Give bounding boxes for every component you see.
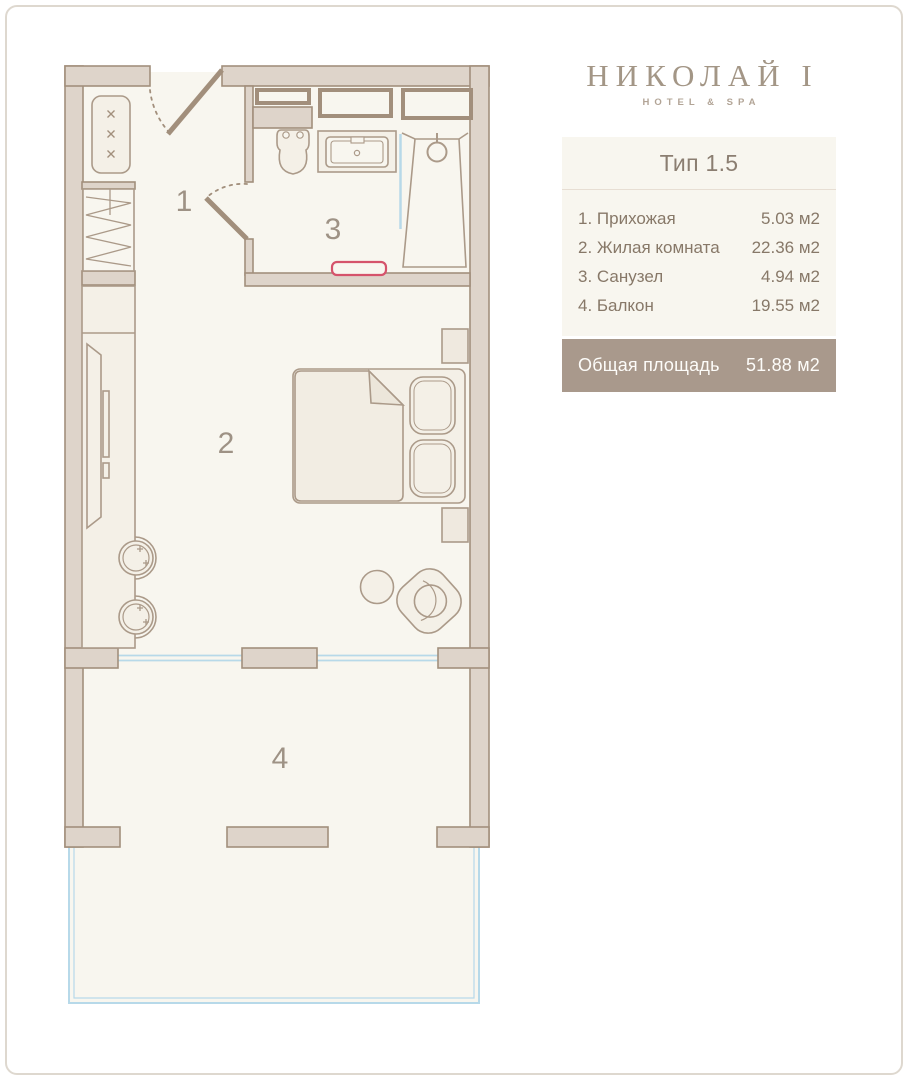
shower-head xyxy=(428,143,447,162)
brand-name: НИКОЛАЙ I xyxy=(562,60,836,91)
room-label: 1. Прихожая xyxy=(578,204,676,233)
room-label: 4. Балкон xyxy=(578,291,654,320)
panel-header: Тип 1.5 xyxy=(562,137,836,190)
wall-top-right xyxy=(222,66,489,86)
wall-balcony-post-left xyxy=(65,648,118,668)
shoe-cabinet xyxy=(92,96,130,173)
room-list: 1. Прихожая 5.03 м2 2. Жилая комната 22.… xyxy=(562,190,836,336)
wall-balcony-stub-right xyxy=(437,827,489,847)
wall-closet-bottom xyxy=(82,271,135,285)
total-label: Общая площадь xyxy=(578,355,720,376)
room-row: 3. Санузел 4.94 м2 xyxy=(578,262,820,291)
tv-screen xyxy=(103,391,109,457)
nightstand-bottom xyxy=(442,508,468,542)
room-label: 3. Санузел xyxy=(578,262,663,291)
legend-panel: Тип 1.5 1. Прихожая 5.03 м2 2. Жилая ком… xyxy=(562,137,836,336)
room-label-living: 2 xyxy=(218,427,235,460)
total-area-bar: Общая площадь 51.88 м2 xyxy=(562,339,836,392)
wall-left xyxy=(65,66,83,847)
vanity-sink xyxy=(318,131,396,172)
ledge-above-toilet xyxy=(253,107,312,128)
room-row: 1. Прихожая 5.03 м2 xyxy=(578,204,820,233)
wall-bathroom-corner xyxy=(245,239,253,275)
terrace-floor xyxy=(69,846,479,1004)
balcony-sliding-door xyxy=(242,648,317,668)
coat-closet xyxy=(83,189,134,271)
room-label-balcony: 4 xyxy=(272,742,289,775)
room-area: 4.94 м2 xyxy=(761,262,820,291)
wall-bathroom-left xyxy=(245,86,253,182)
brand-tagline: HOTEL & SPA xyxy=(562,97,836,108)
room-area: 19.55 м2 xyxy=(752,291,820,320)
brand-block: НИКОЛАЙ I HOTEL & SPA xyxy=(562,60,836,108)
tv-unit xyxy=(82,286,135,648)
wall-balcony-stub-left xyxy=(65,827,120,847)
room-area: 5.03 м2 xyxy=(761,204,820,233)
bath-mat xyxy=(332,262,386,275)
toilet xyxy=(277,130,309,174)
room-label-hallway: 1 xyxy=(176,185,193,218)
page: 1 2 3 4 НИКОЛАЙ I HOTEL & SPA Тип 1.5 1.… xyxy=(0,0,908,1080)
wall-right xyxy=(470,66,489,847)
nightstand-top xyxy=(442,329,468,363)
total-area: 51.88 м2 xyxy=(746,355,820,376)
wall-closet-top xyxy=(82,182,135,189)
wardrobe-panel xyxy=(87,344,101,528)
bed xyxy=(293,369,465,503)
side-table xyxy=(361,571,394,604)
room-label: 2. Жилая комната xyxy=(578,233,720,262)
wall-balcony-pier xyxy=(227,827,328,847)
wall-top-left xyxy=(65,66,150,86)
room-area: 22.36 м2 xyxy=(752,233,820,262)
pillow xyxy=(410,377,455,434)
pillow xyxy=(410,440,455,497)
faucet xyxy=(351,137,364,143)
unit-type-title: Тип 1.5 xyxy=(660,150,739,177)
room-label-bathroom: 3 xyxy=(325,213,342,246)
room-row: 2. Жилая комната 22.36 м2 xyxy=(578,233,820,262)
room-row: 4. Балкон 19.55 м2 xyxy=(578,291,820,320)
wall-balcony-post-right xyxy=(438,648,489,668)
